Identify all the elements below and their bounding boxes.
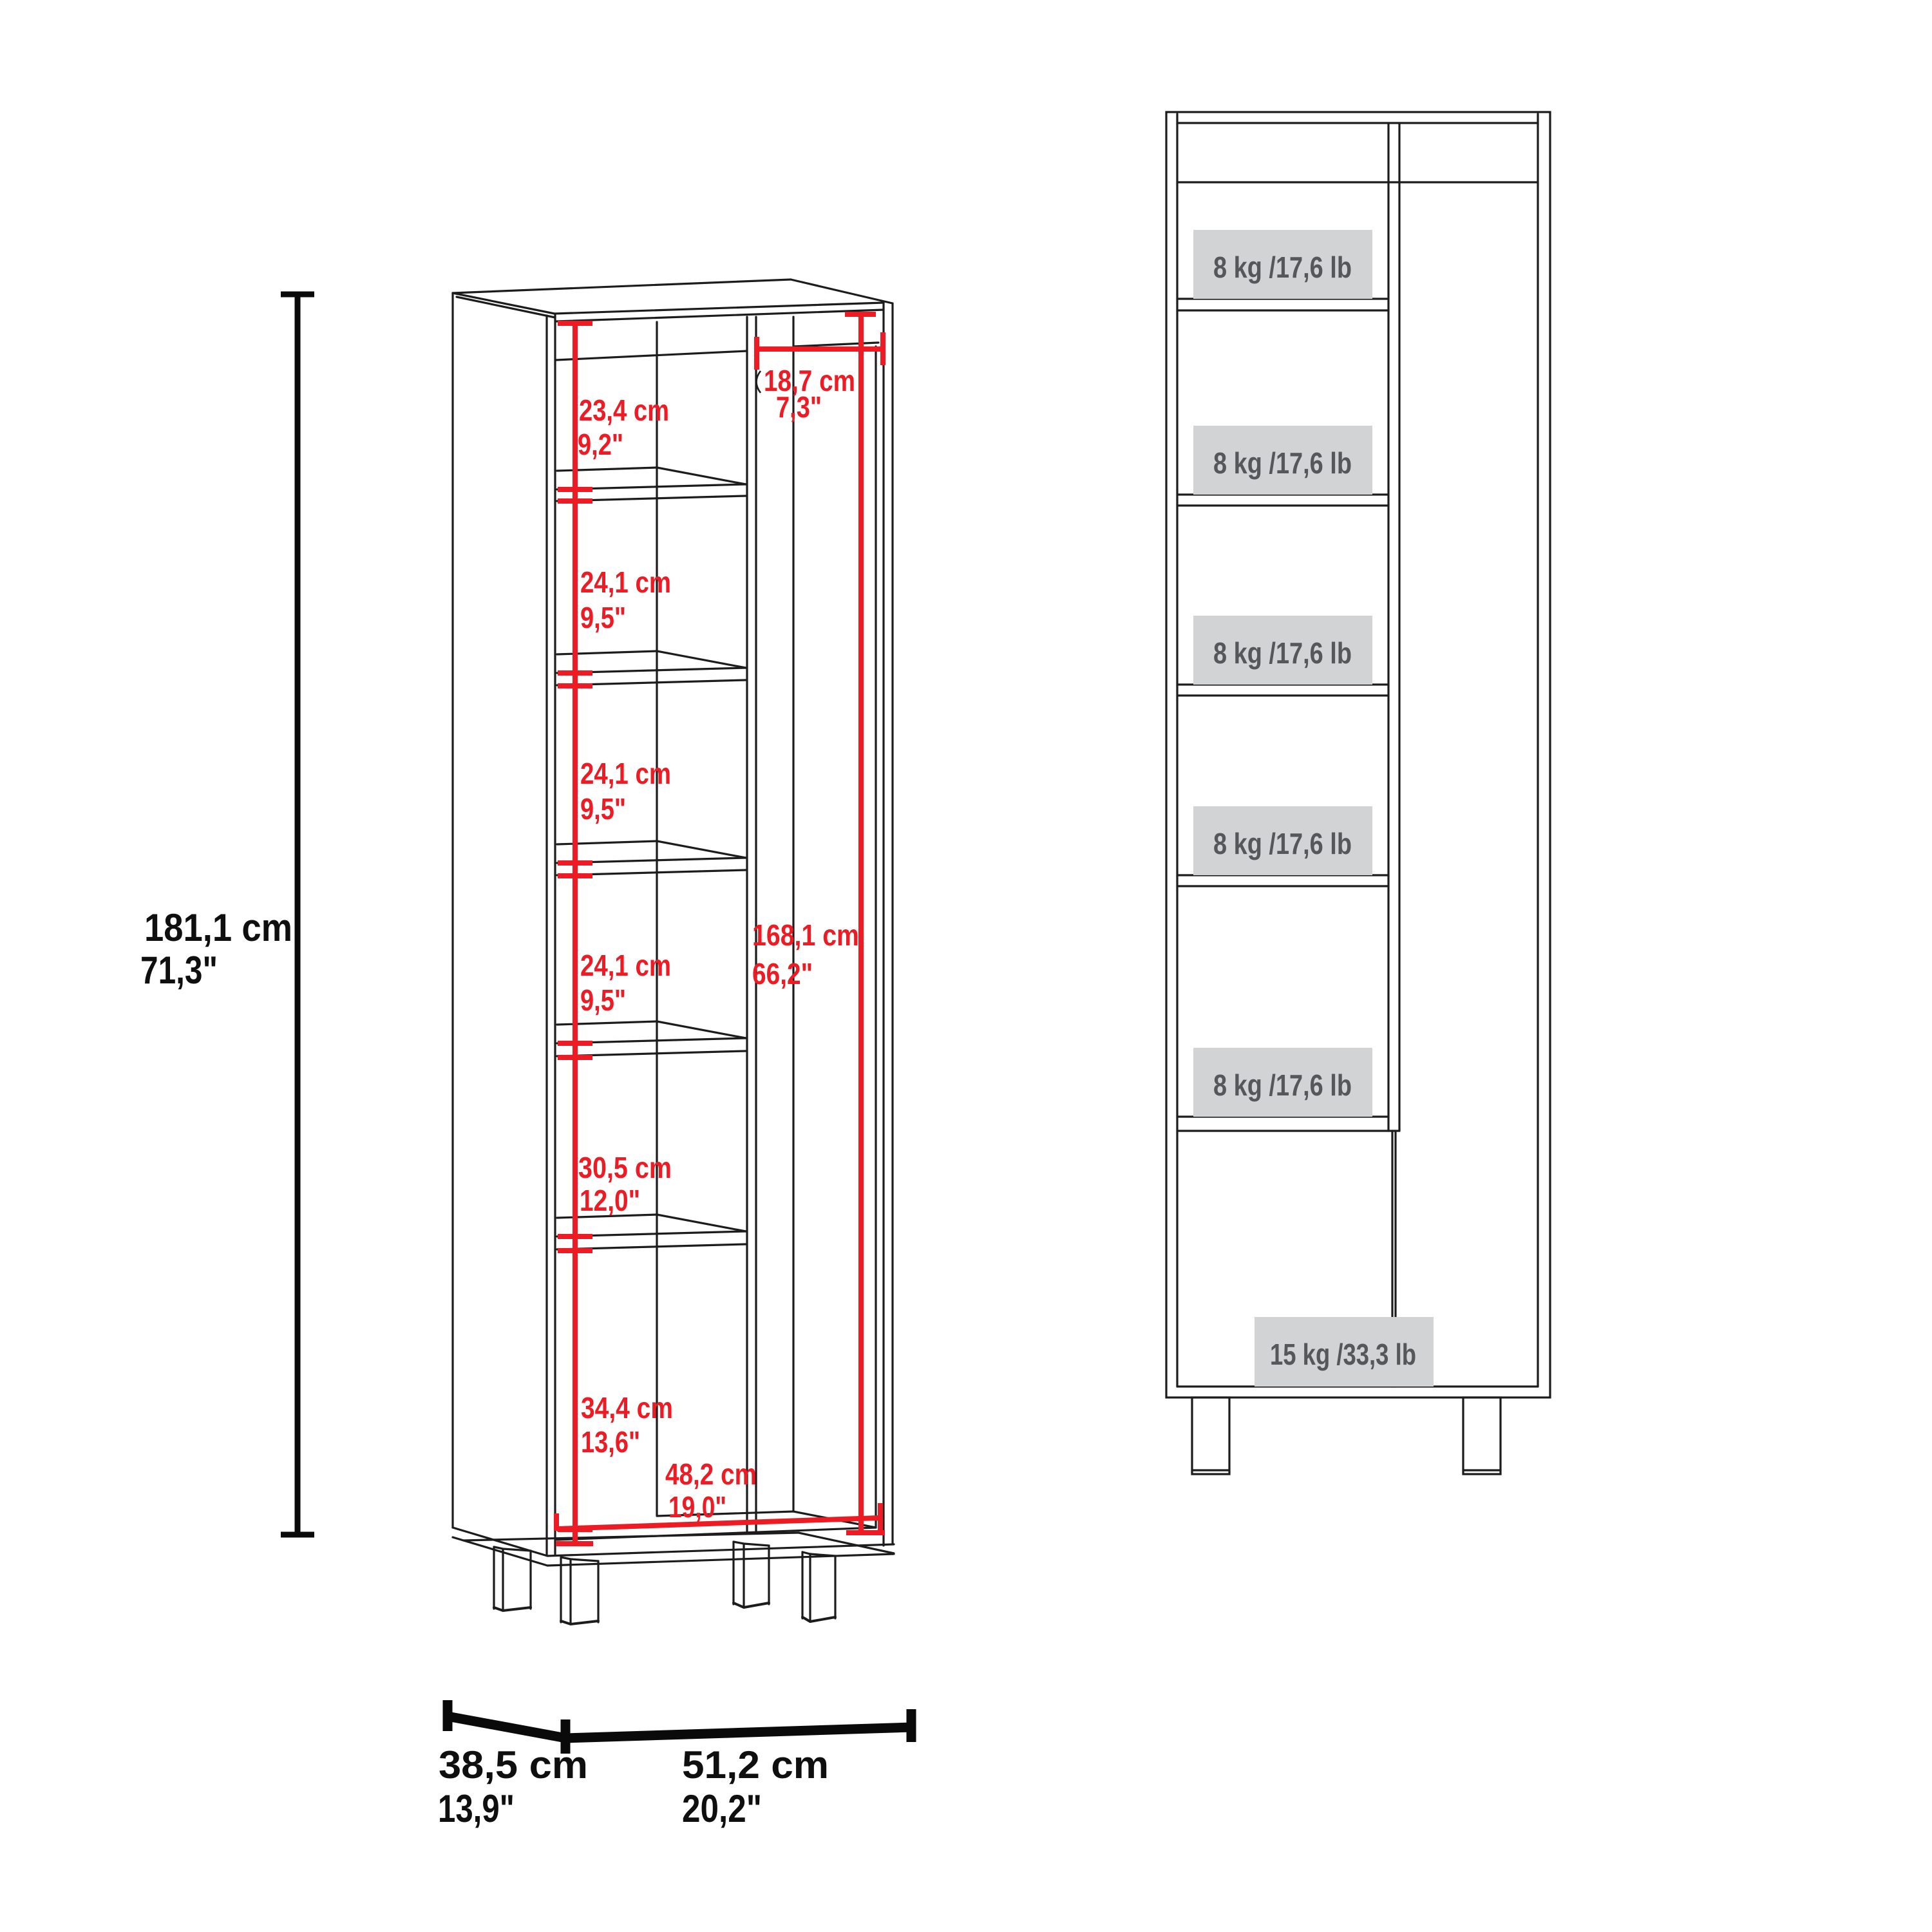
svg-text:168,1 cm: 168,1 cm xyxy=(752,918,859,952)
svg-text:51,2 cm: 51,2 cm xyxy=(682,1743,829,1786)
svg-text:30,5 cm: 30,5 cm xyxy=(578,1151,672,1184)
svg-text:8 kg /17,6 lb: 8 kg /17,6 lb xyxy=(1213,251,1352,284)
svg-text:38,5 cm: 38,5 cm xyxy=(439,1743,588,1786)
svg-text:23,4 cm: 23,4 cm xyxy=(579,393,669,427)
svg-text:8 kg /17,6 lb: 8 kg /17,6 lb xyxy=(1213,827,1352,860)
svg-text:34,4 cm: 34,4 cm xyxy=(581,1391,673,1425)
svg-text:12,0": 12,0" xyxy=(580,1184,640,1217)
svg-text:9,5": 9,5" xyxy=(580,983,626,1017)
svg-text:8 kg /17,6 lb: 8 kg /17,6 lb xyxy=(1213,446,1352,480)
svg-text:66,2": 66,2" xyxy=(752,957,813,990)
svg-text:24,1 cm: 24,1 cm xyxy=(580,757,671,790)
svg-text:48,2 cm: 48,2 cm xyxy=(665,1457,757,1491)
svg-text:8 kg /17,6 lb: 8 kg /17,6 lb xyxy=(1213,1068,1352,1102)
svg-text:13,6": 13,6" xyxy=(581,1425,640,1459)
svg-text:20,2": 20,2" xyxy=(682,1787,762,1830)
svg-text:24,1 cm: 24,1 cm xyxy=(580,949,671,982)
svg-text:9,2": 9,2" xyxy=(578,428,623,461)
svg-text:9,5": 9,5" xyxy=(580,792,626,826)
svg-text:15 kg /33,3 lb: 15 kg /33,3 lb xyxy=(1270,1338,1416,1371)
svg-text:71,3": 71,3" xyxy=(140,949,218,992)
svg-text:181,1 cm: 181,1 cm xyxy=(144,906,292,949)
svg-text:7,3": 7,3" xyxy=(776,390,822,424)
svg-text:9,5": 9,5" xyxy=(580,601,626,634)
svg-text:8 kg /17,6 lb: 8 kg /17,6 lb xyxy=(1213,636,1352,670)
svg-text:13,9": 13,9" xyxy=(438,1787,515,1830)
svg-text:19,0": 19,0" xyxy=(668,1490,726,1524)
svg-text:24,1 cm: 24,1 cm xyxy=(580,565,671,599)
